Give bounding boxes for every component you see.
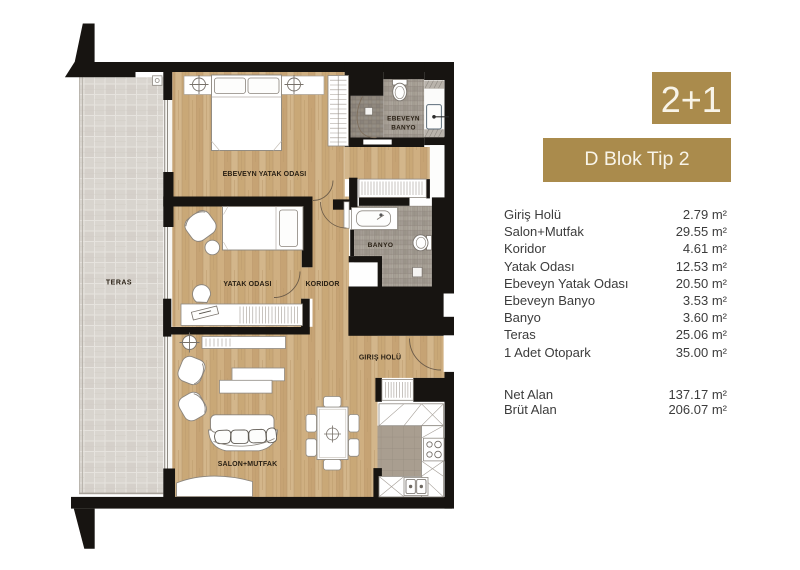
svg-text:BANYO: BANYO bbox=[391, 125, 416, 132]
svg-text:EBEVEYN: EBEVEYN bbox=[387, 116, 420, 123]
svg-text:EBEVEYN YATAK ODASI: EBEVEYN YATAK ODASI bbox=[223, 171, 307, 178]
svg-text:KORIDOR: KORIDOR bbox=[305, 281, 339, 288]
svg-text:BANYO: BANYO bbox=[368, 242, 394, 249]
svg-text:YATAK ODASI: YATAK ODASI bbox=[223, 281, 271, 288]
svg-text:SALON+MUTFAK: SALON+MUTFAK bbox=[218, 461, 278, 468]
svg-text:TERAS: TERAS bbox=[106, 280, 132, 287]
svg-text:GIRIŞ HOLÜ: GIRIŞ HOLÜ bbox=[359, 353, 401, 362]
